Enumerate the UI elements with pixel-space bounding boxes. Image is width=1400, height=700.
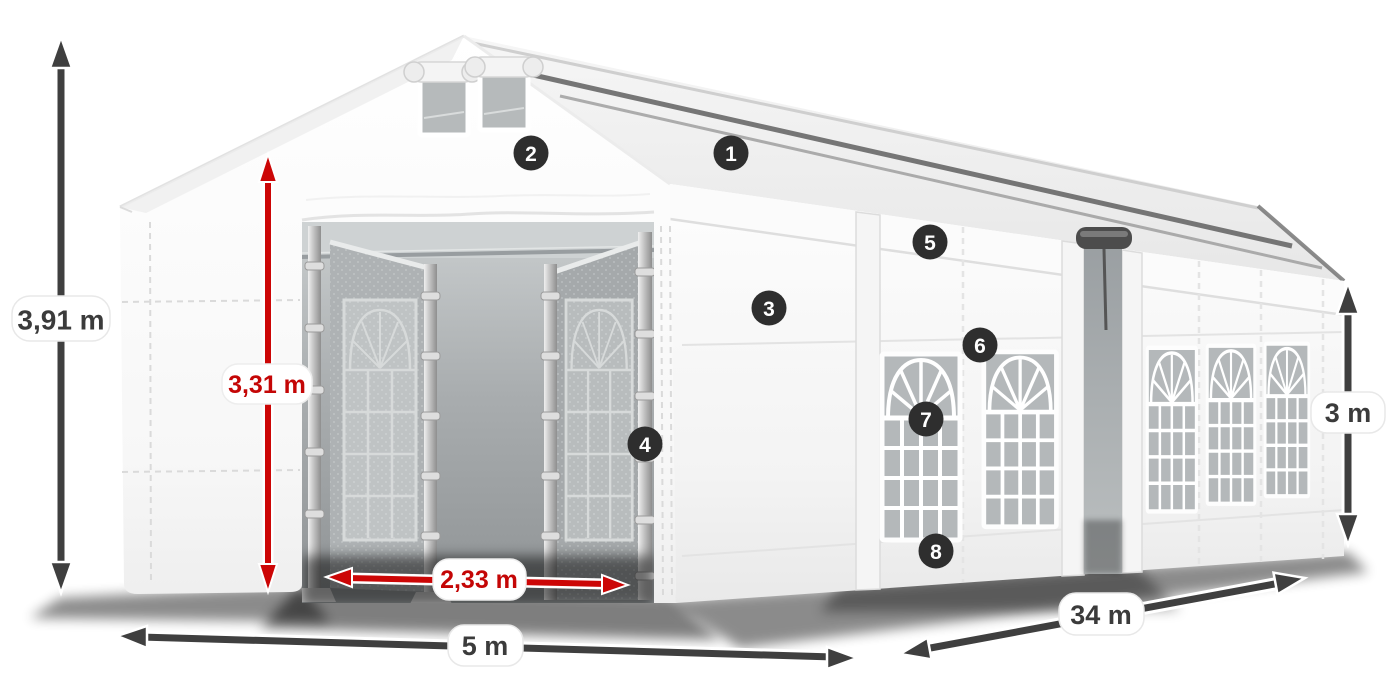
hotspot-badge-5[interactable]: 5	[913, 225, 948, 260]
total-height-label: 3,91 m	[17, 305, 104, 336]
side-window-2	[984, 352, 1057, 527]
entrance-height-label: 3,31 m	[228, 371, 306, 399]
hotspot-badge-1[interactable]: 1	[714, 136, 749, 171]
side-pillar	[1062, 241, 1084, 576]
entrance-width-label: 2,33 m	[440, 566, 518, 594]
hotspot-badge-6[interactable]: 6	[963, 328, 998, 363]
badge-number: 1	[725, 143, 737, 166]
badge-number: 7	[920, 409, 932, 432]
badge-number: 8	[930, 541, 942, 564]
rolled-cover	[1076, 227, 1132, 249]
badge-number: 3	[763, 298, 775, 321]
badge-number: 6	[974, 335, 986, 358]
door-post-right	[635, 232, 655, 600]
hotspot-badge-7[interactable]: 7	[909, 402, 944, 437]
badge-number: 2	[525, 143, 537, 166]
tent-width-label: 5 m	[462, 631, 509, 661]
badge-number: 5	[924, 232, 936, 255]
side-window-3	[1147, 348, 1196, 512]
door-window-print	[344, 300, 416, 540]
hotspot-badge-4[interactable]: 4	[628, 427, 663, 462]
door-window-print	[566, 300, 632, 540]
hotspot-badge-2[interactable]: 2	[514, 136, 549, 171]
open-door-right	[554, 242, 650, 600]
side-pillar	[1122, 250, 1142, 573]
open-door-left	[330, 242, 428, 592]
tent-interior	[294, 222, 655, 606]
side-window-1	[882, 354, 960, 540]
dimension-total-height: 3,91 m	[12, 37, 110, 593]
hotspot-badge-3[interactable]: 3	[752, 291, 787, 326]
badge-number: 4	[639, 434, 651, 457]
side-height-label: 3 m	[1325, 398, 1372, 428]
side-pillar	[856, 212, 880, 590]
tent-dimension-diagram: 3,91 m 3,31 m 2,33 m 5 m	[0, 0, 1400, 700]
side-window-4	[1207, 346, 1255, 504]
tent-diagram-svg: 3,91 m 3,31 m 2,33 m 5 m	[0, 0, 1400, 700]
tent-length-label: 34 m	[1070, 600, 1132, 630]
hotspot-badge-8[interactable]: 8	[919, 534, 954, 569]
side-window-5	[1265, 344, 1309, 497]
